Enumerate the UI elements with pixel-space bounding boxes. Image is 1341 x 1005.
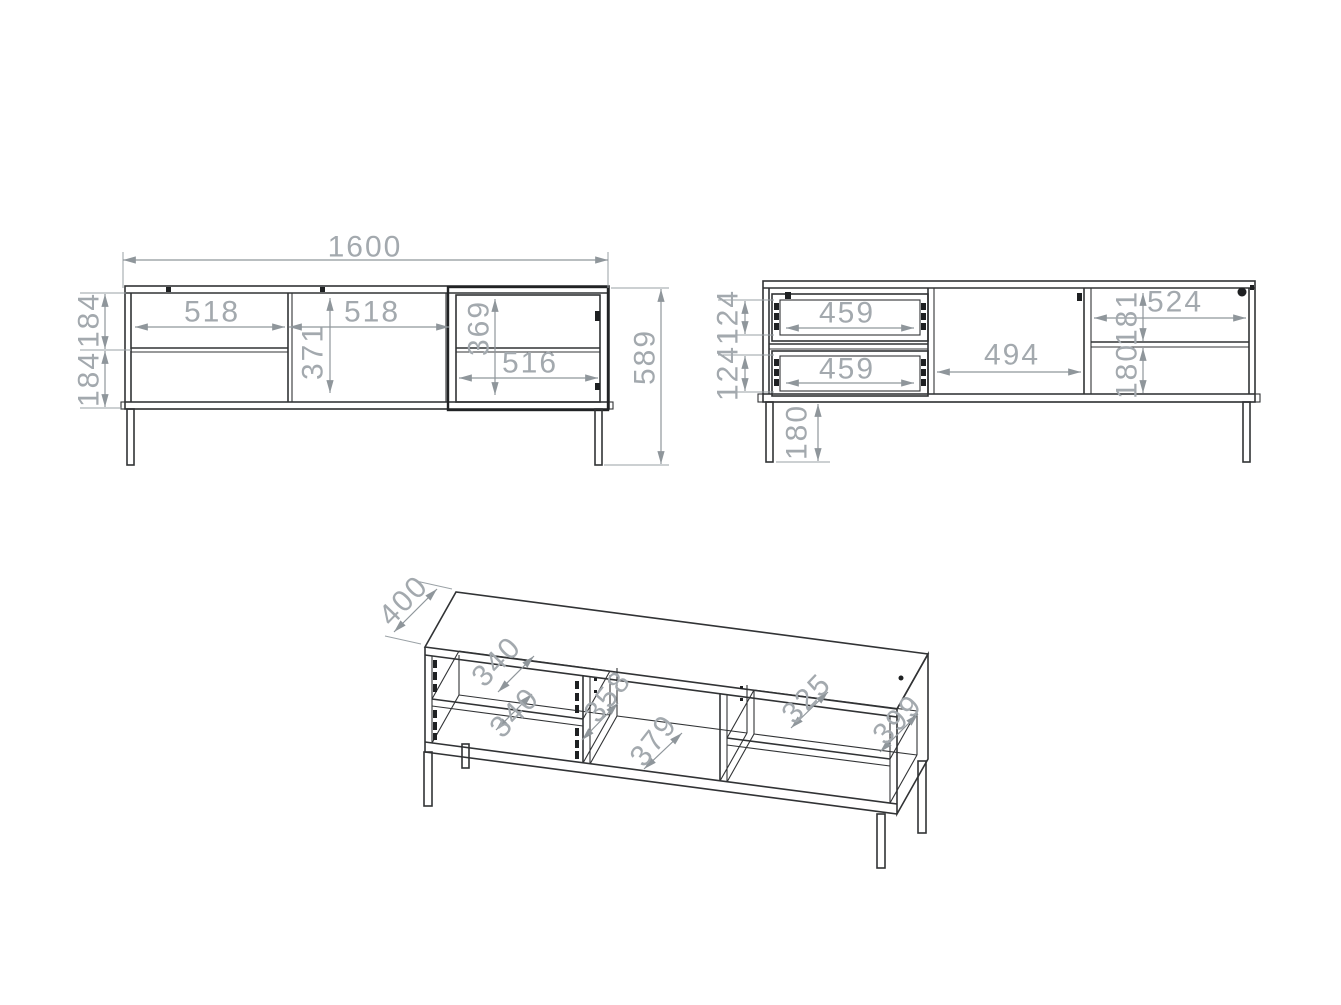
cam-lock-mark [899,676,904,681]
dim-back-drawer-side-heights: 124 124 [712,289,775,401]
dim-label-369: 369 [463,300,496,356]
cam-lock-mark [1238,288,1247,297]
cam-lock-mark [785,292,791,299]
dim-label-180-right: 180 [1111,343,1144,399]
dim-label-459-upper: 459 [819,297,875,330]
dim-front-middle-width: 518 [289,296,449,329]
corner-bracket-mark [1250,285,1254,290]
dim-back-leg-height: 180 [776,404,830,462]
dim-label-1600: 1600 [328,231,403,264]
back-dimensions: 459 459 494 524 181 180 [712,286,1247,463]
hinge-mark [166,287,171,292]
dim-label-524: 524 [1147,286,1203,319]
iso-dimensions: 400 340 340 358 379 325 [372,569,929,773]
furniture-dimension-drawing: 1600 518 518 371 369 516 [0,0,1341,1005]
dim-label-340-lower: 340 [483,681,546,744]
technical-drawing-page: 1600 518 518 371 369 516 [0,0,1341,1005]
dim-label-589: 589 [629,329,662,385]
front-left-leg [127,409,134,465]
iso-view: 400 340 340 358 379 325 [372,569,929,868]
dim-front-overall-height: 589 [604,288,669,465]
dim-iso-top-depth: 400 [372,569,452,644]
back-view: 459 459 494 524 181 180 [712,281,1261,462]
dim-iso-side-depth: 399 [866,688,929,752]
dim-label-516: 516 [502,347,558,380]
dim-back-right-lower-height: 180 [1111,343,1144,399]
dim-label-184-lower: 184 [73,351,106,407]
dim-label-494: 494 [984,339,1040,372]
dim-label-399: 399 [866,688,929,751]
door-bracket-mark [595,383,600,390]
dim-label-184-upper: 184 [73,292,106,348]
cam-lock-mark [1077,293,1082,301]
front-view: 1600 518 518 371 369 516 [73,231,670,466]
dim-label-518-left: 518 [184,296,240,329]
dim-front-middle-height: 371 [297,298,331,393]
dim-front-total-width: 1600 [123,231,608,289]
dim-back-upper-drawer-width: 459 [786,297,914,330]
dim-front-glass-height: 369 [463,299,496,395]
dim-label-325: 325 [775,667,838,730]
dim-label-459-lower: 459 [819,353,875,386]
dim-back-lower-drawer-width: 459 [786,353,914,386]
dim-front-drawer-heights: 184 184 [73,292,132,408]
back-right-leg [1243,402,1250,462]
iso-legs [424,744,926,868]
dim-label-180-leg: 180 [781,404,814,460]
dim-label-371: 371 [297,324,330,380]
dim-front-left-width: 518 [135,296,285,329]
dim-iso-lower-drawer-depth: 340 [483,681,546,744]
door-handle-mark [595,311,600,321]
back-left-leg [766,402,773,462]
dim-label-124-lower: 124 [712,345,745,401]
dim-back-middle-width: 494 [937,339,1081,373]
dim-iso-shelf-depth: 325 [775,667,838,730]
hinge-mark [320,287,325,292]
dim-label-518-middle: 518 [344,296,400,329]
dim-label-124-upper: 124 [712,289,745,345]
dim-label-400: 400 [372,569,435,632]
dim-label-181: 181 [1111,290,1144,346]
dim-back-right-upper-height: 181 [1111,290,1144,346]
front-right-leg [595,409,602,465]
